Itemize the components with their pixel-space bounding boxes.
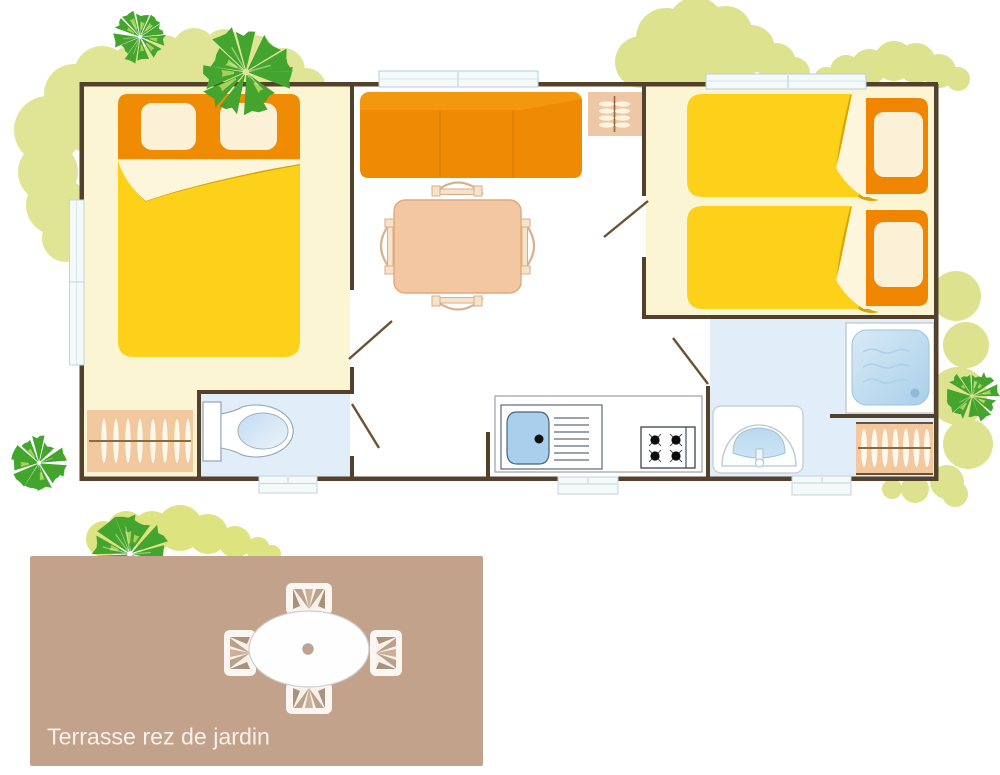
svg-text:Terrasse rez de jardin: Terrasse rez de jardin	[47, 724, 270, 750]
